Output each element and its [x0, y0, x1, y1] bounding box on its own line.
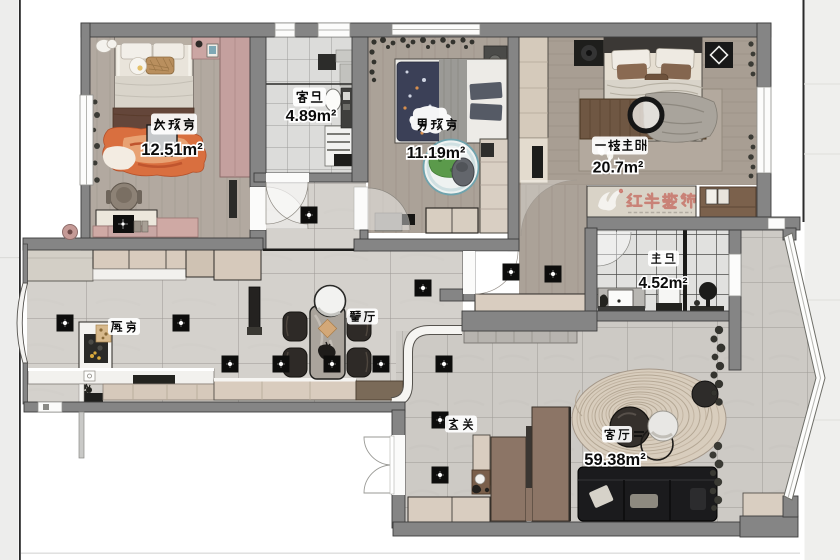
svg-text:59.38m²: 59.38m²	[584, 451, 646, 469]
svg-text:20.7m²: 20.7m²	[593, 160, 644, 177]
svg-text:11.19m²: 11.19m²	[407, 145, 466, 162]
svg-text:12.51m²: 12.51m²	[141, 141, 203, 159]
svg-text:4.89m²: 4.89m²	[286, 108, 337, 125]
svg-text:4.52m²: 4.52m²	[638, 275, 687, 292]
